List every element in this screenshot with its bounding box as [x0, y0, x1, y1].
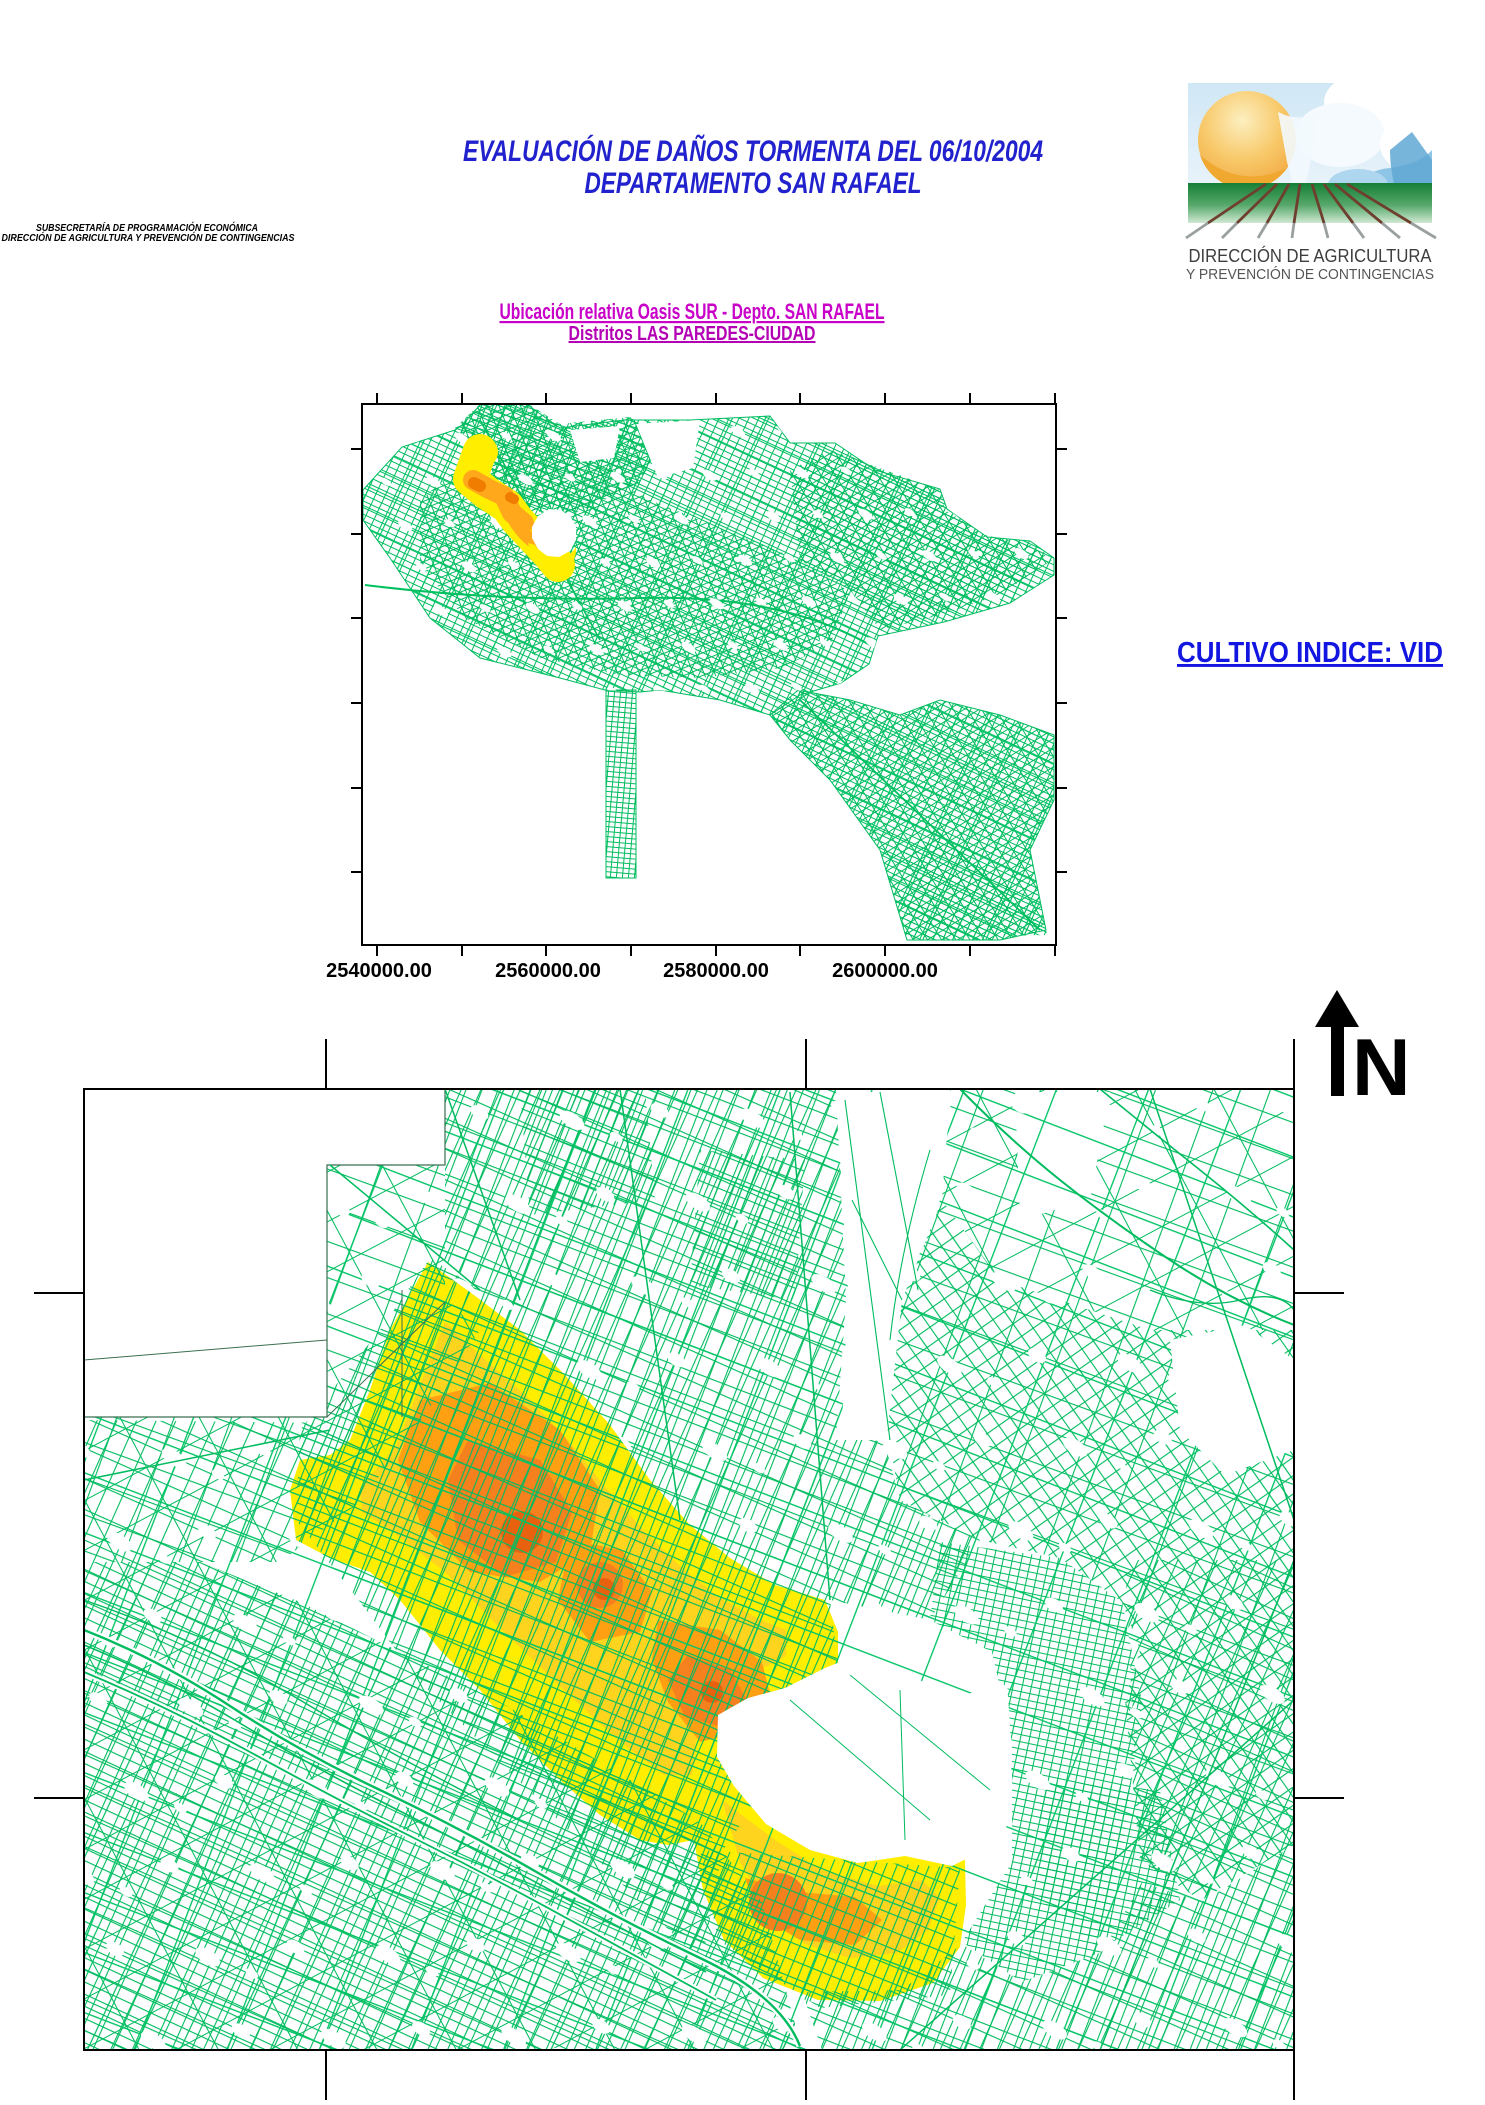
svg-text:2580000.00: 2580000.00	[663, 960, 769, 982]
svg-text:EVALUACIÓN DE DAÑOS TORMENTA D: EVALUACIÓN DE DAÑOS TORMENTA DEL 06/10/2…	[463, 134, 1043, 168]
svg-text:N: N	[1352, 1023, 1411, 1113]
svg-text:Y PREVENCIÓN DE CONTINGENCIAS: Y PREVENCIÓN DE CONTINGENCIAS	[1186, 266, 1434, 283]
svg-text:Ubicación relativa Oasis SUR -: Ubicación relativa Oasis SUR - Depto. SA…	[500, 299, 885, 324]
svg-text:Distritos LAS PAREDES-CIUDAD: Distritos LAS PAREDES-CIUDAD	[569, 323, 816, 345]
svg-text:DIRECCIÓN DE AGRICULTURA Y PR: DIRECCIÓN DE AGRICULTURA Y PREVENCIÓN DE…	[2, 231, 295, 244]
svg-text:DEPARTAMENTO SAN RAFAEL: DEPARTAMENTO SAN RAFAEL	[585, 167, 922, 200]
svg-text:CULTIVO INDICE: VID: CULTIVO INDICE: VID	[1177, 637, 1443, 669]
svg-text:2600000.00: 2600000.00	[832, 960, 938, 982]
svg-text:DIRECCIÓN DE AGRICULTURA: DIRECCIÓN DE AGRICULTURA	[1189, 245, 1432, 266]
svg-text:2560000.00: 2560000.00	[495, 960, 601, 982]
svg-text:2540000.00: 2540000.00	[326, 960, 432, 982]
